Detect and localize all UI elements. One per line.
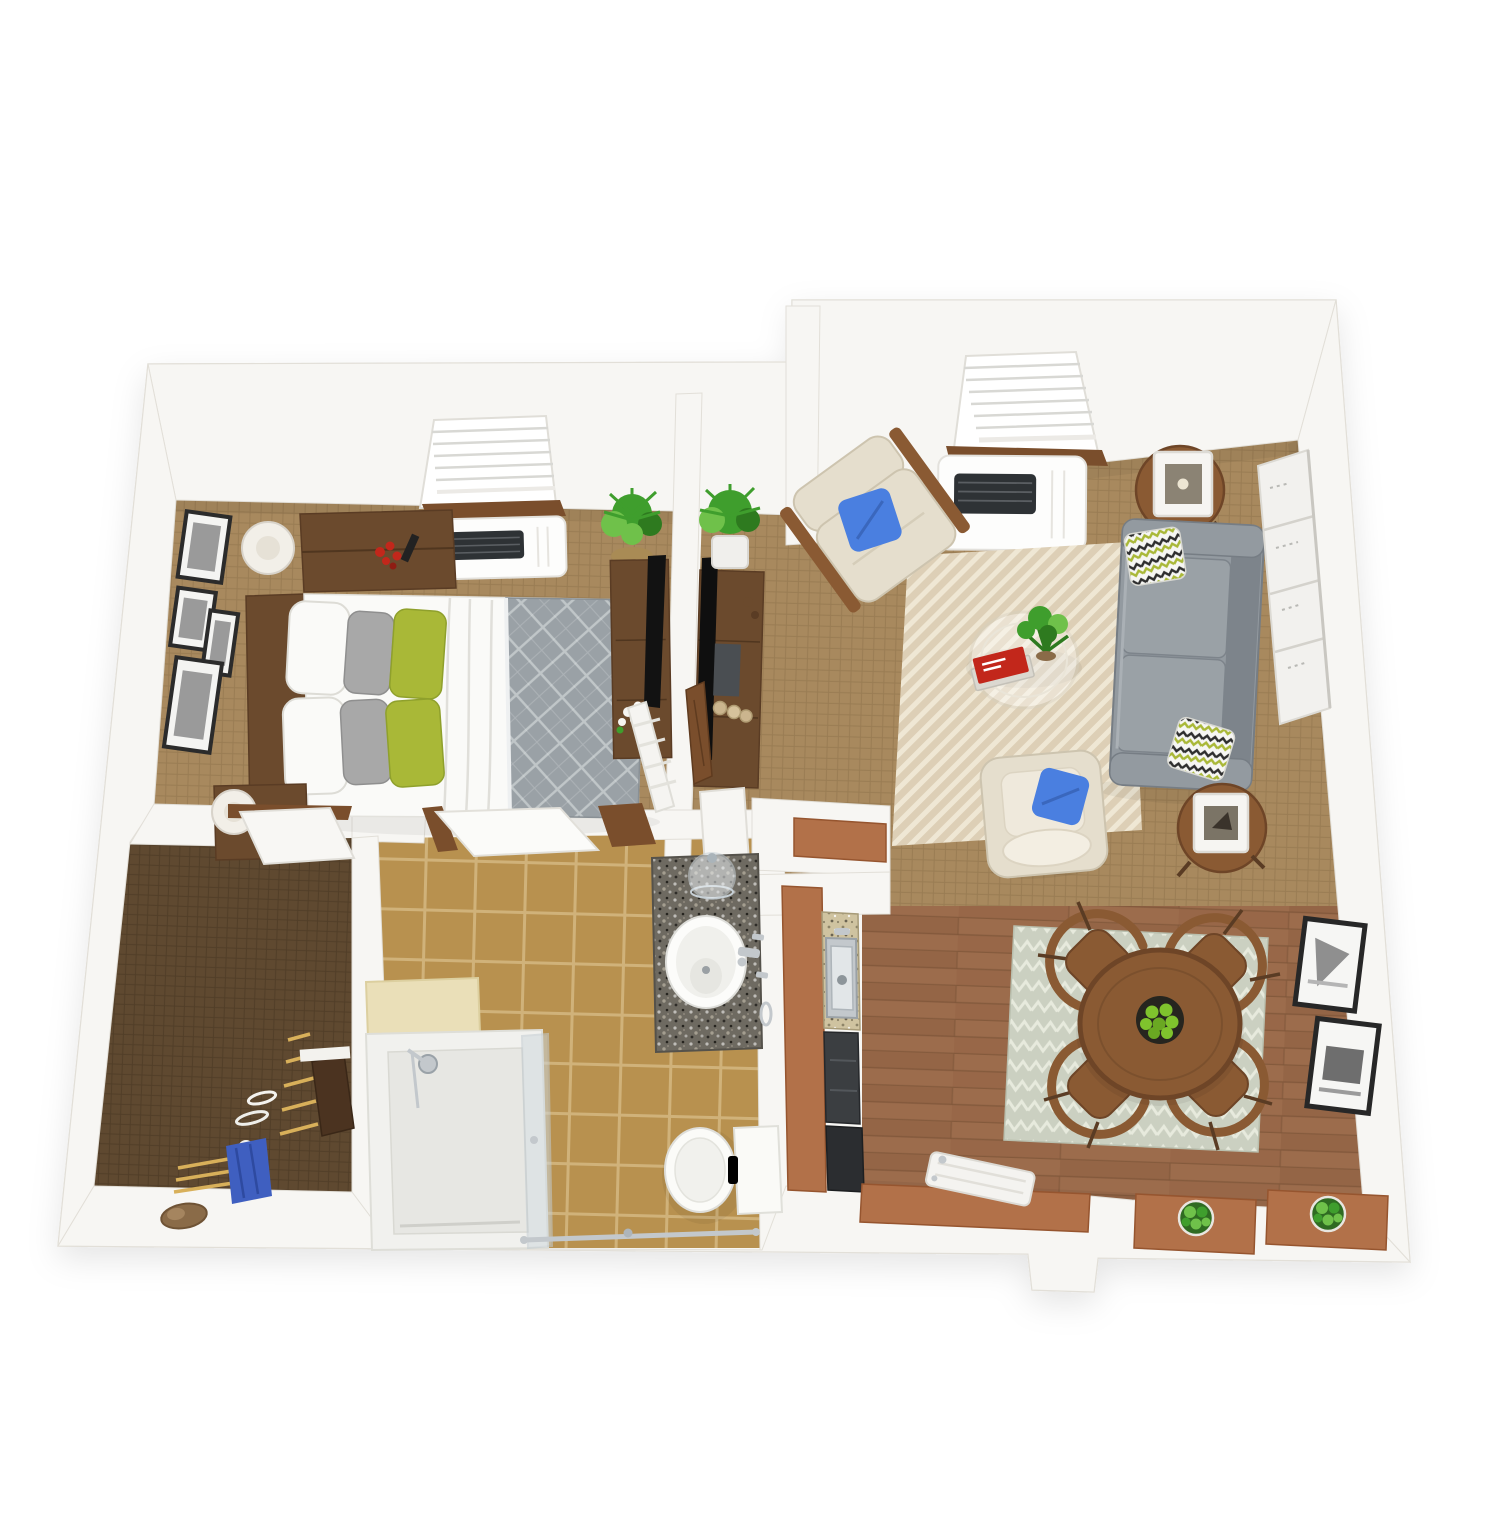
glass-cloche	[689, 853, 735, 899]
planter-table-west	[1134, 1194, 1256, 1254]
closet-floor	[94, 838, 352, 1192]
planter-table-east	[1266, 1190, 1388, 1250]
kitchen-faucet	[834, 928, 850, 935]
cream-accent-chair	[979, 749, 1109, 883]
pass-through-ledge	[794, 818, 886, 862]
floor-plan-svg	[0, 0, 1500, 1536]
decor-bottle	[743, 597, 753, 607]
tv-bracket	[713, 644, 741, 697]
floor-plan-image	[0, 0, 1500, 1536]
stainless-sink	[826, 928, 857, 1018]
chevron-pillow	[1123, 526, 1186, 586]
floor-plan	[58, 300, 1410, 1292]
walk-in-shower	[366, 1030, 552, 1250]
dark-appliance-lower	[826, 1126, 864, 1192]
bedroom-window	[420, 416, 556, 508]
ac-grille	[954, 473, 1036, 514]
toilet-tank	[734, 1126, 782, 1214]
dark-appliance-upper	[824, 1032, 860, 1124]
cube-lantern	[1154, 452, 1212, 516]
blue-garment	[226, 1138, 272, 1204]
shower-door-handle	[530, 1136, 538, 1144]
framed-art-lower	[1307, 1018, 1379, 1113]
living-window	[954, 352, 1098, 452]
sink-drain	[837, 975, 847, 985]
sink-drain	[702, 966, 710, 974]
round-dining-table	[1076, 950, 1244, 1106]
bed	[246, 594, 660, 836]
cream-half-wall	[366, 978, 480, 1038]
framed-art-upper	[1295, 918, 1365, 1011]
toilet	[662, 1126, 782, 1224]
green-pillow	[389, 608, 447, 699]
fruit-bowl-green-apples	[1136, 996, 1184, 1044]
green-pillow	[385, 698, 445, 788]
gray-sofa	[1094, 518, 1269, 808]
living-ac-unit	[938, 455, 1087, 550]
cube-vase	[1194, 794, 1248, 852]
terracotta-counter	[782, 886, 826, 1192]
decor-bottle	[751, 611, 759, 619]
